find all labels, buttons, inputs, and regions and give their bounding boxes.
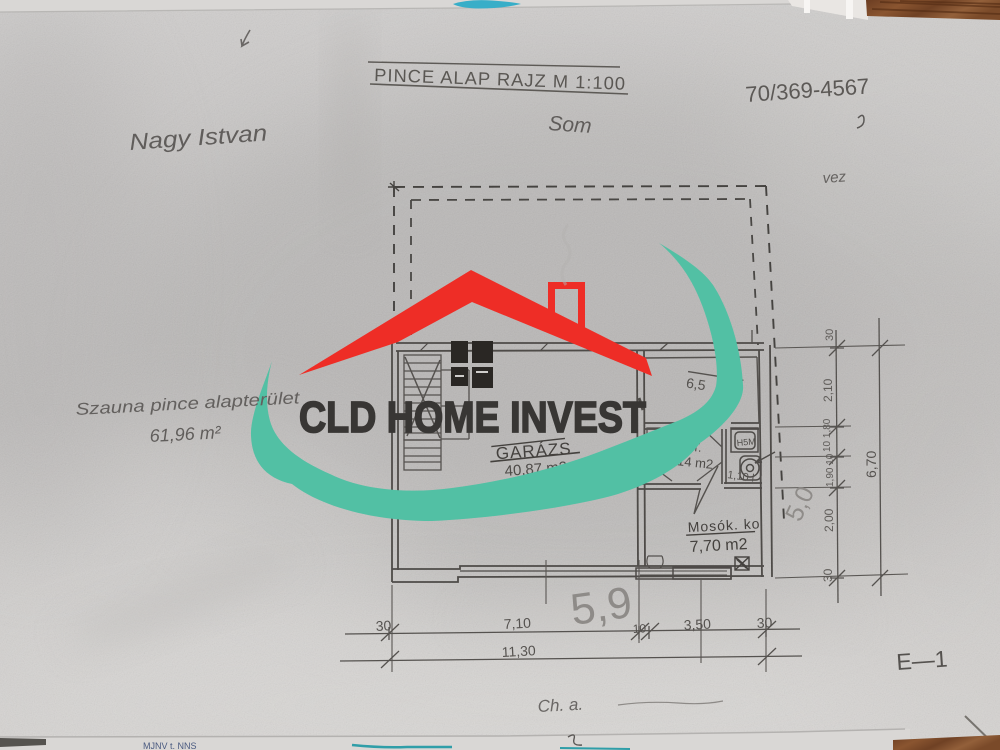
svg-text:2,10: 2,10 (821, 378, 835, 402)
svg-text:CLD HOME INVEST: CLD HOME INVEST (299, 393, 646, 442)
svg-text:7,70 m2: 7,70 m2 (689, 536, 748, 556)
svg-text:61,96 m²: 61,96 m² (149, 422, 222, 446)
svg-text:6,70: 6,70 (863, 451, 879, 478)
svg-text:30: 30 (375, 617, 392, 634)
svg-text:10 1,80: 10 1,80 (822, 418, 833, 452)
svg-text:MJNV t. NNS: MJNV t. NNS (143, 741, 197, 750)
svg-text:10: 10 (632, 621, 646, 636)
svg-text:Ch. a.: Ch. a. (537, 695, 583, 716)
svg-text:5,9: 5,9 (568, 578, 635, 635)
svg-text:H5M: H5M (736, 436, 756, 448)
svg-text:30: 30 (824, 329, 836, 341)
svg-text:1,90 10: 1,90 10 (825, 453, 836, 487)
svg-text:6,5: 6,5 (685, 374, 707, 393)
svg-text:E—1: E—1 (896, 645, 949, 675)
svg-text:3,50: 3,50 (683, 616, 711, 633)
svg-text:7,10: 7,10 (503, 615, 531, 632)
svg-text:vez: vez (822, 168, 847, 187)
svg-text:11,30: 11,30 (501, 642, 536, 660)
svg-text:30: 30 (756, 614, 773, 631)
svg-text:2,00: 2,00 (822, 508, 836, 532)
svg-text:Som: Som (548, 112, 593, 138)
svg-text:30: 30 (821, 568, 835, 582)
